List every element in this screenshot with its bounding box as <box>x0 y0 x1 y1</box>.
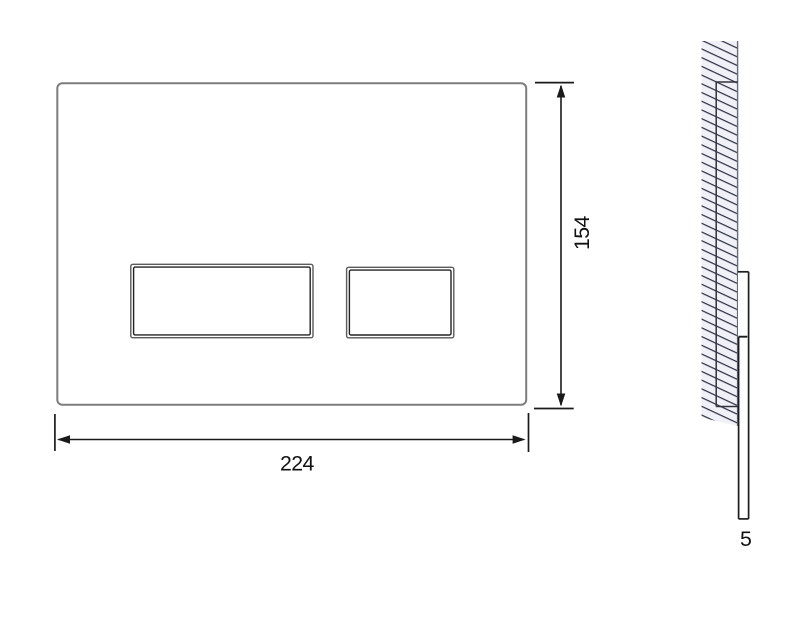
svg-text:154: 154 <box>570 216 594 250</box>
svg-text:224: 224 <box>280 451 314 475</box>
svg-text:5: 5 <box>740 527 752 551</box>
